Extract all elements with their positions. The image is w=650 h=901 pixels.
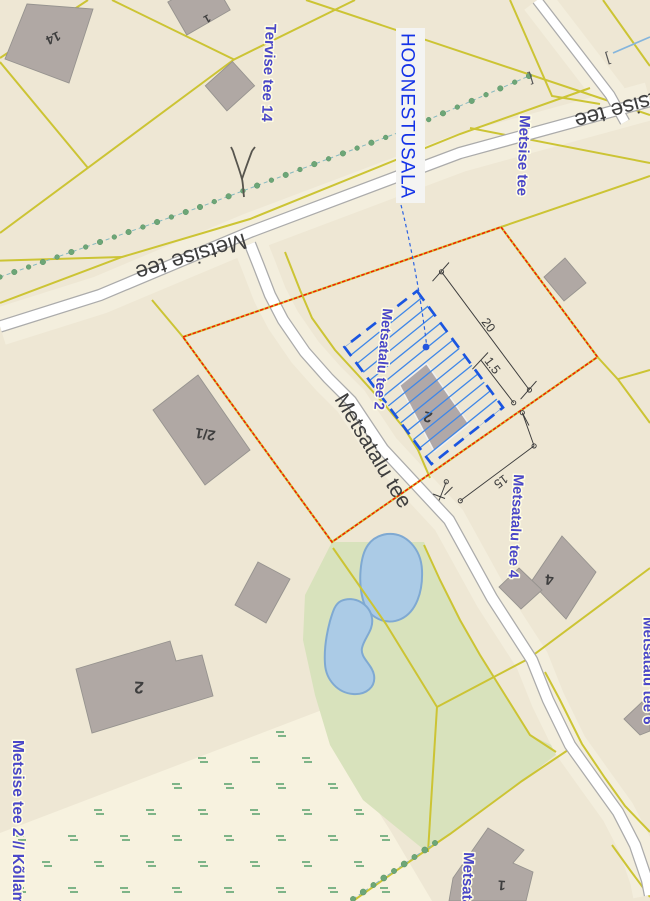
svg-text:Metsatalu tee 6: Metsatalu tee 6 [640, 617, 650, 725]
svg-text:2: 2 [134, 678, 144, 697]
svg-text:Metsise tee 2 // Kõllamäe: Metsise tee 2 // Kõllamäe [9, 740, 26, 901]
svg-text:2/1: 2/1 [194, 424, 216, 443]
svg-text:HOONESTUSALA: HOONESTUSALA [397, 33, 418, 199]
svg-text:Metsise tee: Metsise tee [513, 115, 533, 196]
svg-text:1: 1 [497, 877, 506, 894]
